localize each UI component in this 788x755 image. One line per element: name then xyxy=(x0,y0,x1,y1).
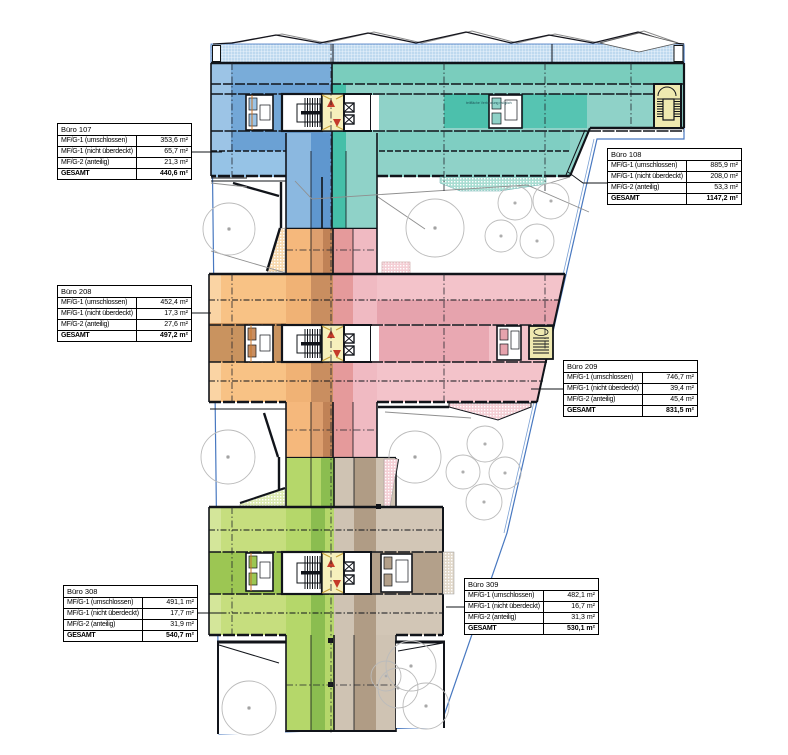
svg-text:teilfläche Verbindung möglich: teilfläche Verbindung möglich xyxy=(466,101,512,105)
